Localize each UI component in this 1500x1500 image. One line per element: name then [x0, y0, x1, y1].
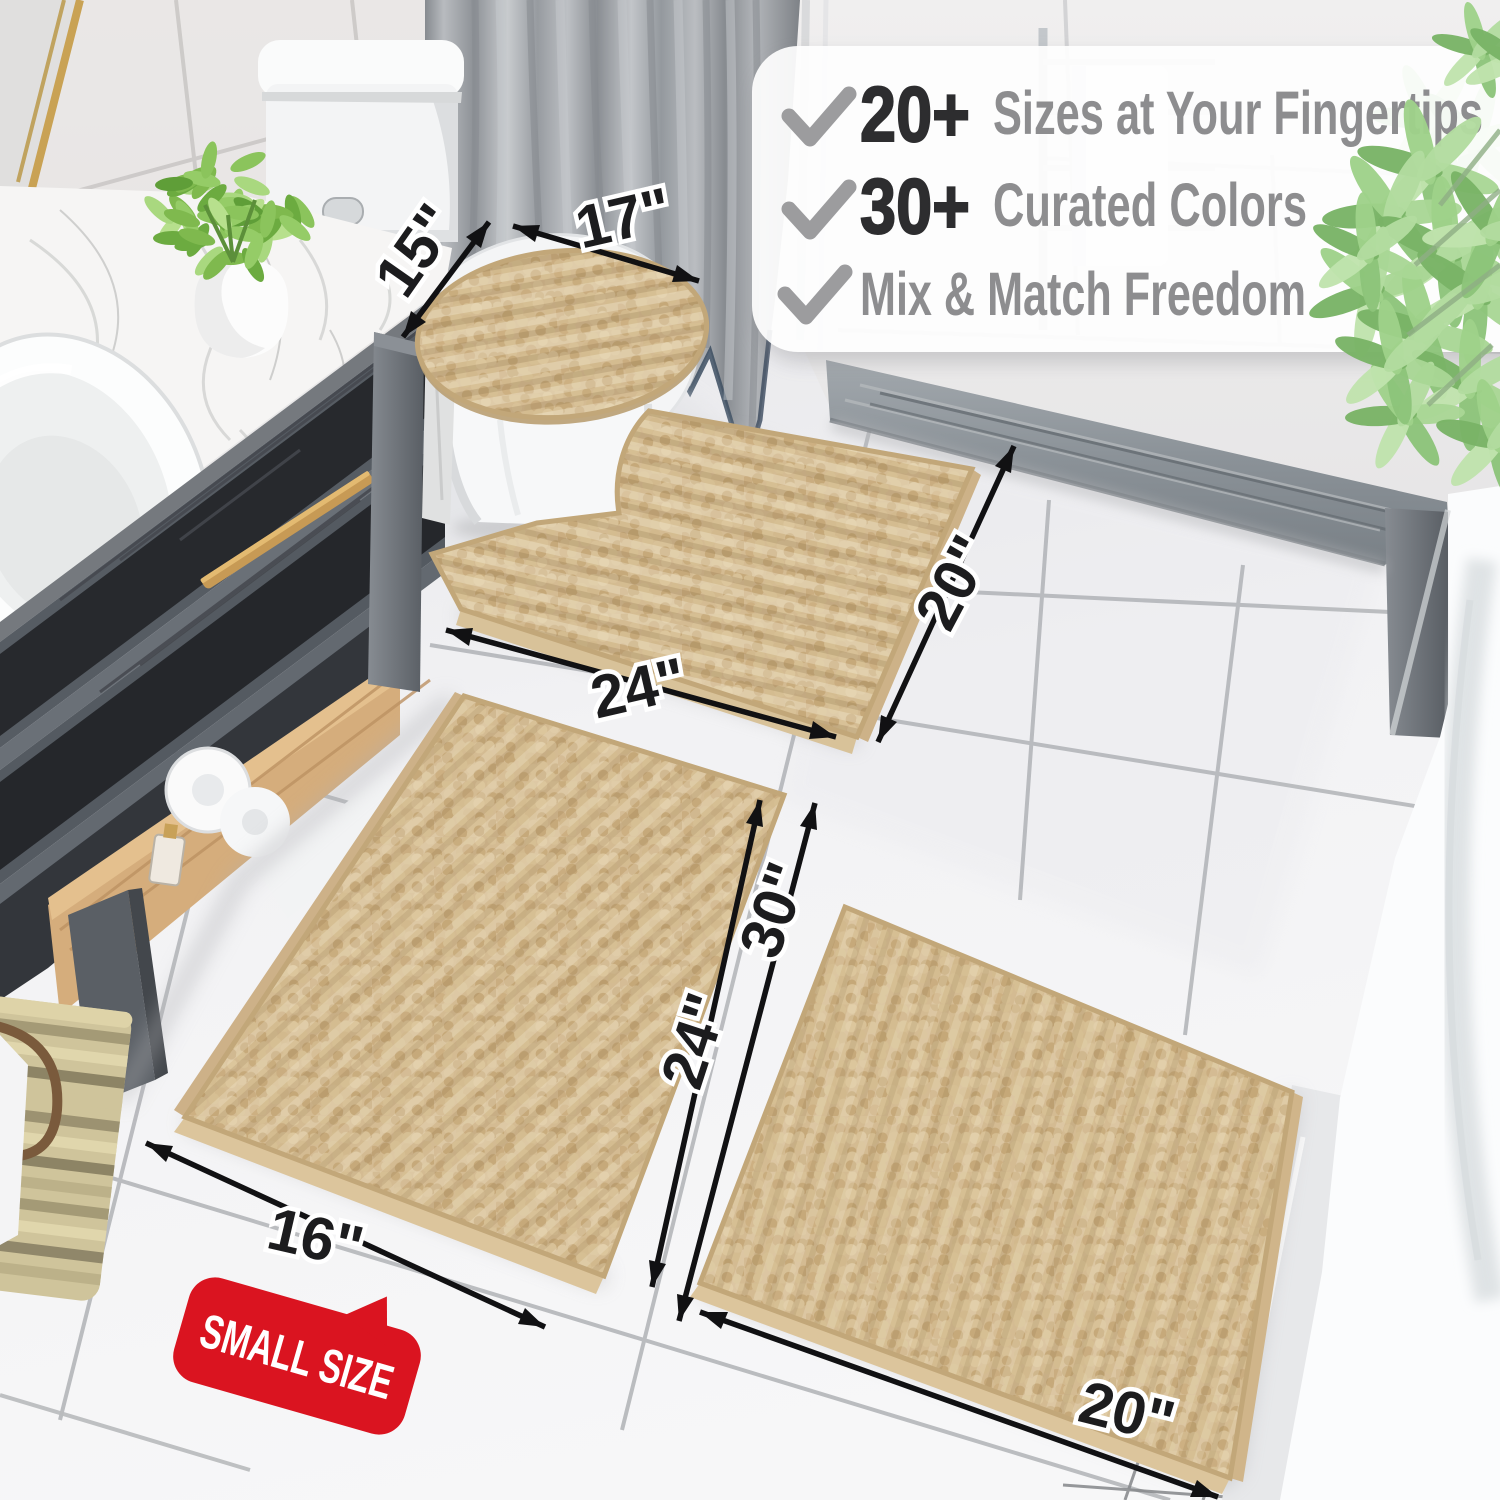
svg-text:30+: 30+	[860, 162, 970, 250]
svg-text:Mix & Match Freedom: Mix & Match Freedom	[860, 260, 1306, 328]
svg-text:Curated Colors: Curated Colors	[993, 171, 1307, 239]
svg-text:20+: 20+	[860, 70, 970, 158]
